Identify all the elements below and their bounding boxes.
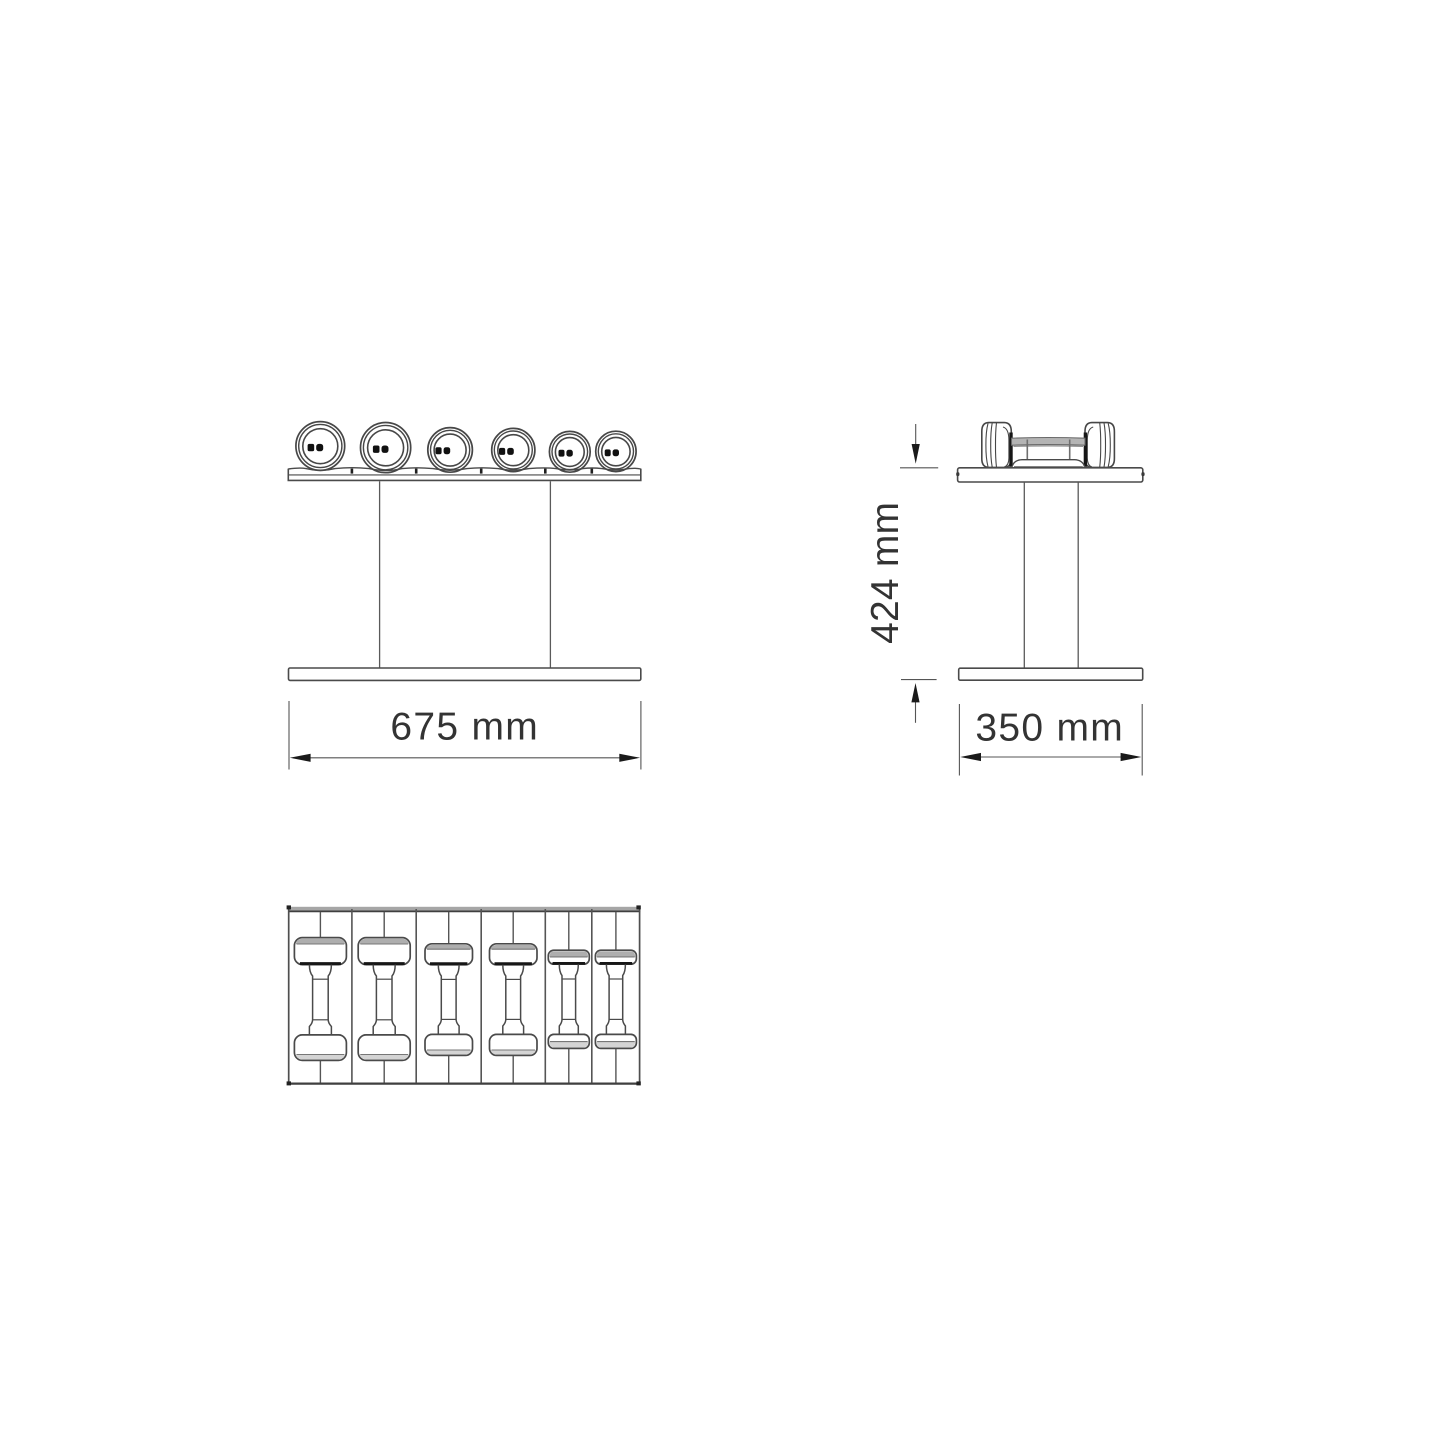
svg-text:350 mm: 350 mm [975,707,1124,750]
svg-text:675 mm: 675 mm [390,706,539,749]
svg-text:424 mm: 424 mm [864,502,907,644]
